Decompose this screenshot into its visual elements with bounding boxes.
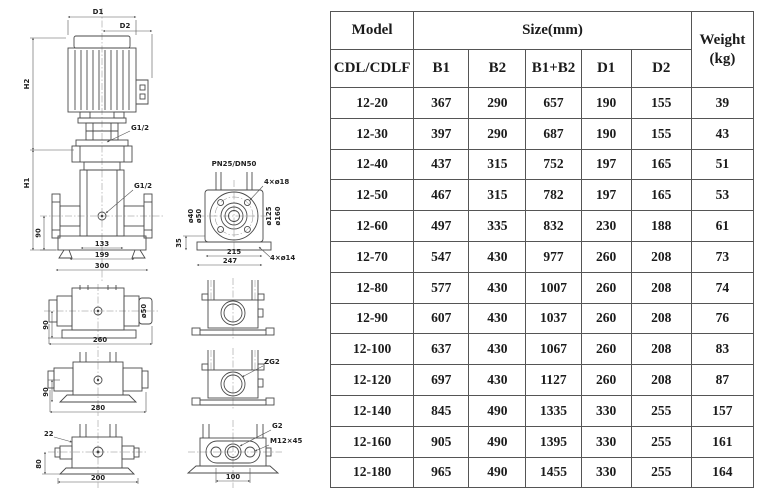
cell-b2: 290 [469,118,526,149]
cell-model: 12-30 [331,118,414,149]
table-row: 12-40 437 315 752 197 165 51 [331,149,754,180]
dia-125-label: ø125 [265,206,273,225]
cell-b2: 430 [469,365,526,396]
cell-b1b2: 1127 [526,365,581,396]
dia-160-label: ø160 [274,206,282,225]
cell-weight: 83 [691,334,753,365]
side-a-dia50-label: ø50 [140,304,148,318]
dim-d1-label: D1 [93,8,104,16]
cell-model: 12-90 [331,303,414,334]
cell-d1: 260 [581,272,631,303]
cell-weight: 53 [691,180,753,211]
dim-d2-label: D2 [120,22,131,30]
dia-50-label: ø50 [195,209,203,223]
cell-weight: 51 [691,149,753,180]
cell-b1b2: 687 [526,118,581,149]
cell-b1b2: 752 [526,149,581,180]
cell-model: 12-100 [331,334,414,365]
header-col-b2: B2 [469,50,526,88]
cell-model: 12-70 [331,241,414,272]
cell-model: 12-140 [331,395,414,426]
header-col-d2: D2 [631,50,691,88]
side-a-dim260-label: 260 [93,336,107,344]
cell-d2: 208 [631,272,691,303]
side-b-dim280-label: 280 [91,404,105,412]
cell-d1: 330 [581,457,631,488]
cell-d1: 260 [581,334,631,365]
table-body: 12-20 367 290 657 190 155 39 12-30 397 2… [331,88,754,488]
cell-d1: 260 [581,303,631,334]
cell-d1: 197 [581,149,631,180]
header-size-group: Size(mm) [414,12,692,50]
side-b-dim90-label: 90 [42,387,50,397]
cell-d1: 190 [581,88,631,119]
cell-b1b2: 657 [526,88,581,119]
dia-40-label: ø40 [187,209,195,223]
cell-b1: 397 [414,118,469,149]
spec-table-container: Model Size(mm) Weight (kg) CDL/CDLF B1 B… [330,11,754,488]
dim-133-label: 133 [95,240,109,248]
cell-model: 12-60 [331,211,414,242]
cell-b1b2: 1007 [526,272,581,303]
table-row: 12-160 905 490 1395 330 255 161 [331,426,754,457]
drawing-side-view-top: ø50 90 260 [42,284,158,348]
cell-b2: 335 [469,211,526,242]
cell-b1: 607 [414,303,469,334]
cell-weight: 76 [691,303,753,334]
dim-h1-label: H1 [23,178,31,189]
cell-weight: 74 [691,272,753,303]
cell-b1b2: 832 [526,211,581,242]
header-model: Model [331,12,414,50]
table-row: 12-70 547 430 977 260 208 73 [331,241,754,272]
cell-b1: 905 [414,426,469,457]
cell-d1: 330 [581,426,631,457]
cell-b2: 315 [469,180,526,211]
cell-model: 12-180 [331,457,414,488]
drawing-pump-front-view: D1 D2 H2 H1 [23,8,164,282]
dimensions-table: Model Size(mm) Weight (kg) CDL/CDLF B1 B… [330,11,754,488]
cell-b1b2: 1067 [526,334,581,365]
cell-weight: 61 [691,211,753,242]
dim-35-label: 35 [175,238,183,248]
cell-model: 12-80 [331,272,414,303]
port-g2-label: G2 [272,422,283,430]
cell-b2: 315 [469,149,526,180]
dim-200-label: 200 [91,474,105,482]
cell-weight: 43 [691,118,753,149]
cell-weight: 164 [691,457,753,488]
drawing-section-view-top [192,278,274,340]
bolts-bottom-label: 4×ø14 [270,254,295,262]
cell-b2: 430 [469,241,526,272]
cell-model: 12-20 [331,88,414,119]
header-col-b1b2: B1+B2 [526,50,581,88]
cell-d1: 230 [581,211,631,242]
cell-b2: 430 [469,272,526,303]
pump-spec-sheet-page: D1 D2 H2 H1 [0,0,757,500]
drawing-side-view-bottom: 22 80 200 [35,420,146,488]
cell-b1: 367 [414,88,469,119]
table-row: 12-140 845 490 1335 330 255 157 [331,395,754,426]
cell-weight: 39 [691,88,753,119]
cell-b2: 490 [469,426,526,457]
cell-d2: 255 [631,395,691,426]
cell-b1b2: 1037 [526,303,581,334]
dim-247-label: 247 [223,257,237,265]
dim-300-label: 300 [95,262,109,270]
cell-b2: 290 [469,88,526,119]
table-row: 12-80 577 430 1007 260 208 74 [331,272,754,303]
header-series: CDL/CDLF [331,50,414,88]
cell-d2: 255 [631,457,691,488]
port-g12-lower-label: G1/2 [134,182,152,190]
cell-b1b2: 1455 [526,457,581,488]
table-row: 12-180 965 490 1455 330 255 164 [331,457,754,488]
dim-90-label: 90 [35,228,43,238]
cell-b1b2: 782 [526,180,581,211]
cell-d1: 260 [581,365,631,396]
port-zg2-label: ZG2 [264,358,280,366]
cell-d1: 197 [581,180,631,211]
cell-b1: 845 [414,395,469,426]
cell-b1: 467 [414,180,469,211]
header-weight-line1: Weight [692,31,753,50]
cell-d1: 260 [581,241,631,272]
cell-d2: 155 [631,118,691,149]
cell-b1: 637 [414,334,469,365]
cell-d2: 208 [631,303,691,334]
cell-b1: 577 [414,272,469,303]
cell-d2: 208 [631,365,691,396]
header-weight-line2: (kg) [692,50,753,69]
table-header: Model Size(mm) Weight (kg) CDL/CDLF B1 B… [331,12,754,88]
cell-d2: 165 [631,180,691,211]
bolts-top-label: 4×ø18 [264,178,289,186]
cell-d2: 208 [631,241,691,272]
dim-80-label: 80 [35,459,43,469]
cell-model: 12-120 [331,365,414,396]
header-weight: Weight (kg) [691,12,753,88]
dim-100-label: 100 [226,473,240,481]
flange-title-label: PN25/DN50 [212,160,257,168]
table-row: 12-100 637 430 1067 260 208 83 [331,334,754,365]
cell-d1: 330 [581,395,631,426]
dim-22-label: 22 [44,430,54,438]
header-col-d1: D1 [581,50,631,88]
cell-model: 12-50 [331,180,414,211]
cell-d2: 188 [631,211,691,242]
dim-215-label: 215 [227,248,241,256]
cell-b2: 490 [469,395,526,426]
cell-b1b2: 1395 [526,426,581,457]
cell-b1: 497 [414,211,469,242]
cell-b1: 697 [414,365,469,396]
drawing-flange-top-view: PN25/DN50 4×ø18 ø40 ø50 ø125 ø160 [175,160,295,265]
cell-d2: 155 [631,88,691,119]
table-row: 12-20 367 290 657 190 155 39 [331,88,754,119]
bolt-m12-label: M12×45 [270,437,302,445]
cell-b1b2: 977 [526,241,581,272]
cell-b1b2: 1335 [526,395,581,426]
cell-b2: 430 [469,303,526,334]
dim-h2-label: H2 [23,79,31,90]
table-row: 12-120 697 430 1127 260 208 87 [331,365,754,396]
drawing-section-view-middle: ZG2 [192,348,280,410]
cell-b1: 965 [414,457,469,488]
cell-b2: 490 [469,457,526,488]
cell-b1: 547 [414,241,469,272]
cell-d2: 165 [631,149,691,180]
cell-d1: 190 [581,118,631,149]
cell-weight: 87 [691,365,753,396]
cell-model: 12-160 [331,426,414,457]
cell-d2: 208 [631,334,691,365]
table-row: 12-90 607 430 1037 260 208 76 [331,303,754,334]
cell-d2: 255 [631,426,691,457]
drawing-outlet-flange-view: G2 M12×45 100 [188,420,302,488]
pump-technical-drawings: D1 D2 H2 H1 [0,0,330,500]
cell-weight: 73 [691,241,753,272]
port-g12-upper-label: G1/2 [131,124,149,132]
cell-b2: 430 [469,334,526,365]
drawing-side-view-middle: 90 280 [42,350,148,416]
dim-199-label: 199 [95,251,109,259]
table-row: 12-60 497 335 832 230 188 61 [331,211,754,242]
cell-weight: 161 [691,426,753,457]
header-col-b1: B1 [414,50,469,88]
cell-model: 12-40 [331,149,414,180]
table-row: 12-30 397 290 687 190 155 43 [331,118,754,149]
table-row: 12-50 467 315 782 197 165 53 [331,180,754,211]
cell-weight: 157 [691,395,753,426]
cell-b1: 437 [414,149,469,180]
